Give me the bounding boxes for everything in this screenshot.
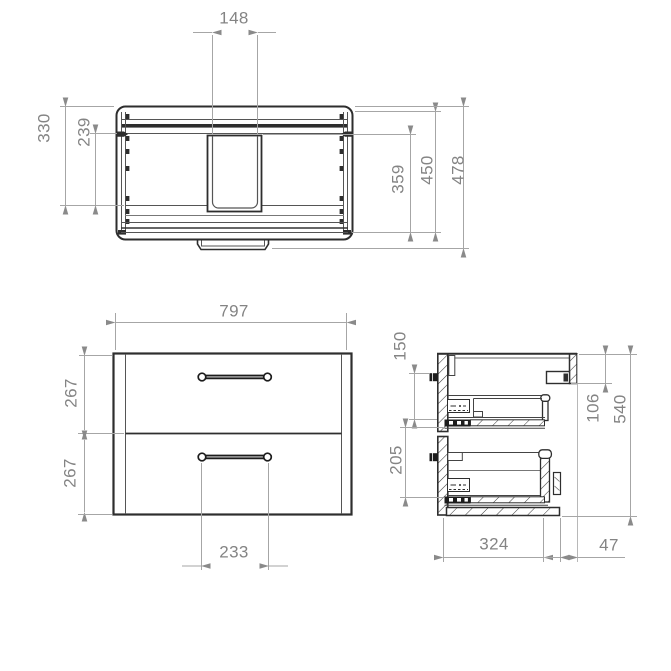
dim-side-106: 106 [585, 393, 602, 423]
dim-side-540: 540 [612, 394, 629, 424]
dim-side-205: 205 [388, 445, 405, 475]
lower-drawer-section [445, 450, 561, 506]
dim-plan-depth-450: 450 [419, 155, 436, 185]
bottom-panel-section [447, 508, 560, 516]
dim-front-handle-233: 233 [219, 544, 249, 561]
dim-side-47: 47 [599, 537, 619, 554]
dim-side-150: 150 [392, 331, 409, 361]
plan-view [60, 33, 469, 250]
dim-front-upper-267: 267 [63, 378, 80, 408]
technical-drawing-page: 148 330 239 359 450 478 797 267 267 233 … [0, 0, 671, 671]
dim-front-lower-267: 267 [62, 458, 79, 488]
side-view [400, 354, 637, 562]
dim-plan-depth-330: 330 [36, 113, 53, 143]
front-tab [198, 241, 269, 250]
dim-plan-cutout-width: 148 [219, 10, 249, 27]
handle-sections [430, 373, 438, 461]
back-rail-section [570, 354, 578, 384]
drawing-linework [0, 0, 671, 671]
dim-plan-depth-359: 359 [390, 164, 407, 194]
dim-plan-depth-478: 478 [450, 155, 467, 185]
upper-drawer-section [445, 395, 550, 429]
dim-plan-depth-239: 239 [76, 117, 93, 147]
sink-cutout [208, 136, 262, 212]
dim-front-width-797: 797 [219, 303, 249, 320]
dim-side-324: 324 [479, 536, 509, 553]
front-view [78, 313, 352, 570]
hanging-bracket [547, 372, 570, 384]
